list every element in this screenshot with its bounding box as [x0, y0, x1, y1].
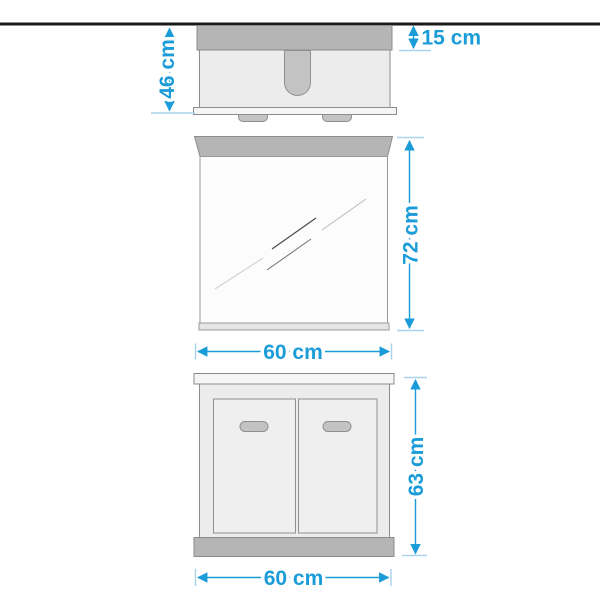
dim-cabinet-height: 63 cm — [402, 378, 428, 556]
dim-overhang-label: 15 cm — [422, 26, 482, 49]
mirror-glass — [200, 157, 388, 324]
dim-mirror-height-label: 72 cm — [399, 205, 422, 265]
dim-mirror-width-label: 60 cm — [263, 341, 323, 364]
top-view-front-edge — [194, 108, 397, 115]
dim-depth-label: 46 cm — [156, 39, 179, 99]
dim-mirror-height: 72 cm — [397, 138, 424, 331]
cabinet-handle-left — [240, 422, 268, 432]
top-view — [194, 26, 397, 122]
product-dimension-diagram: 46 cm 15 cm 72 cm — [0, 0, 600, 600]
mirror-crown — [195, 137, 393, 157]
top-view-foot-right — [323, 115, 352, 122]
mirror-shelf — [199, 323, 389, 330]
diagram-canvas: 46 cm 15 cm 72 cm — [0, 0, 600, 600]
cabinet-door-right — [299, 399, 378, 533]
dim-depth: 46 cm — [151, 29, 195, 114]
top-view-foot-left — [239, 115, 268, 122]
top-view-basin-cutout — [285, 51, 311, 96]
cabinet-view — [194, 374, 394, 557]
cabinet-countertop — [194, 374, 394, 385]
dim-cabinet-height-label: 63 cm — [405, 437, 428, 497]
cabinet-handle-right — [323, 422, 351, 432]
dim-cabinet-width: 60 cm — [196, 567, 392, 590]
mirror-view — [195, 137, 393, 331]
dim-overhang: 15 cm — [399, 26, 481, 50]
dim-mirror-width: 60 cm — [196, 341, 392, 364]
cabinet-door-left — [214, 399, 296, 533]
dim-cabinet-width-label: 60 cm — [264, 567, 324, 590]
cabinet-plinth — [194, 538, 394, 557]
top-view-canopy — [197, 26, 392, 51]
